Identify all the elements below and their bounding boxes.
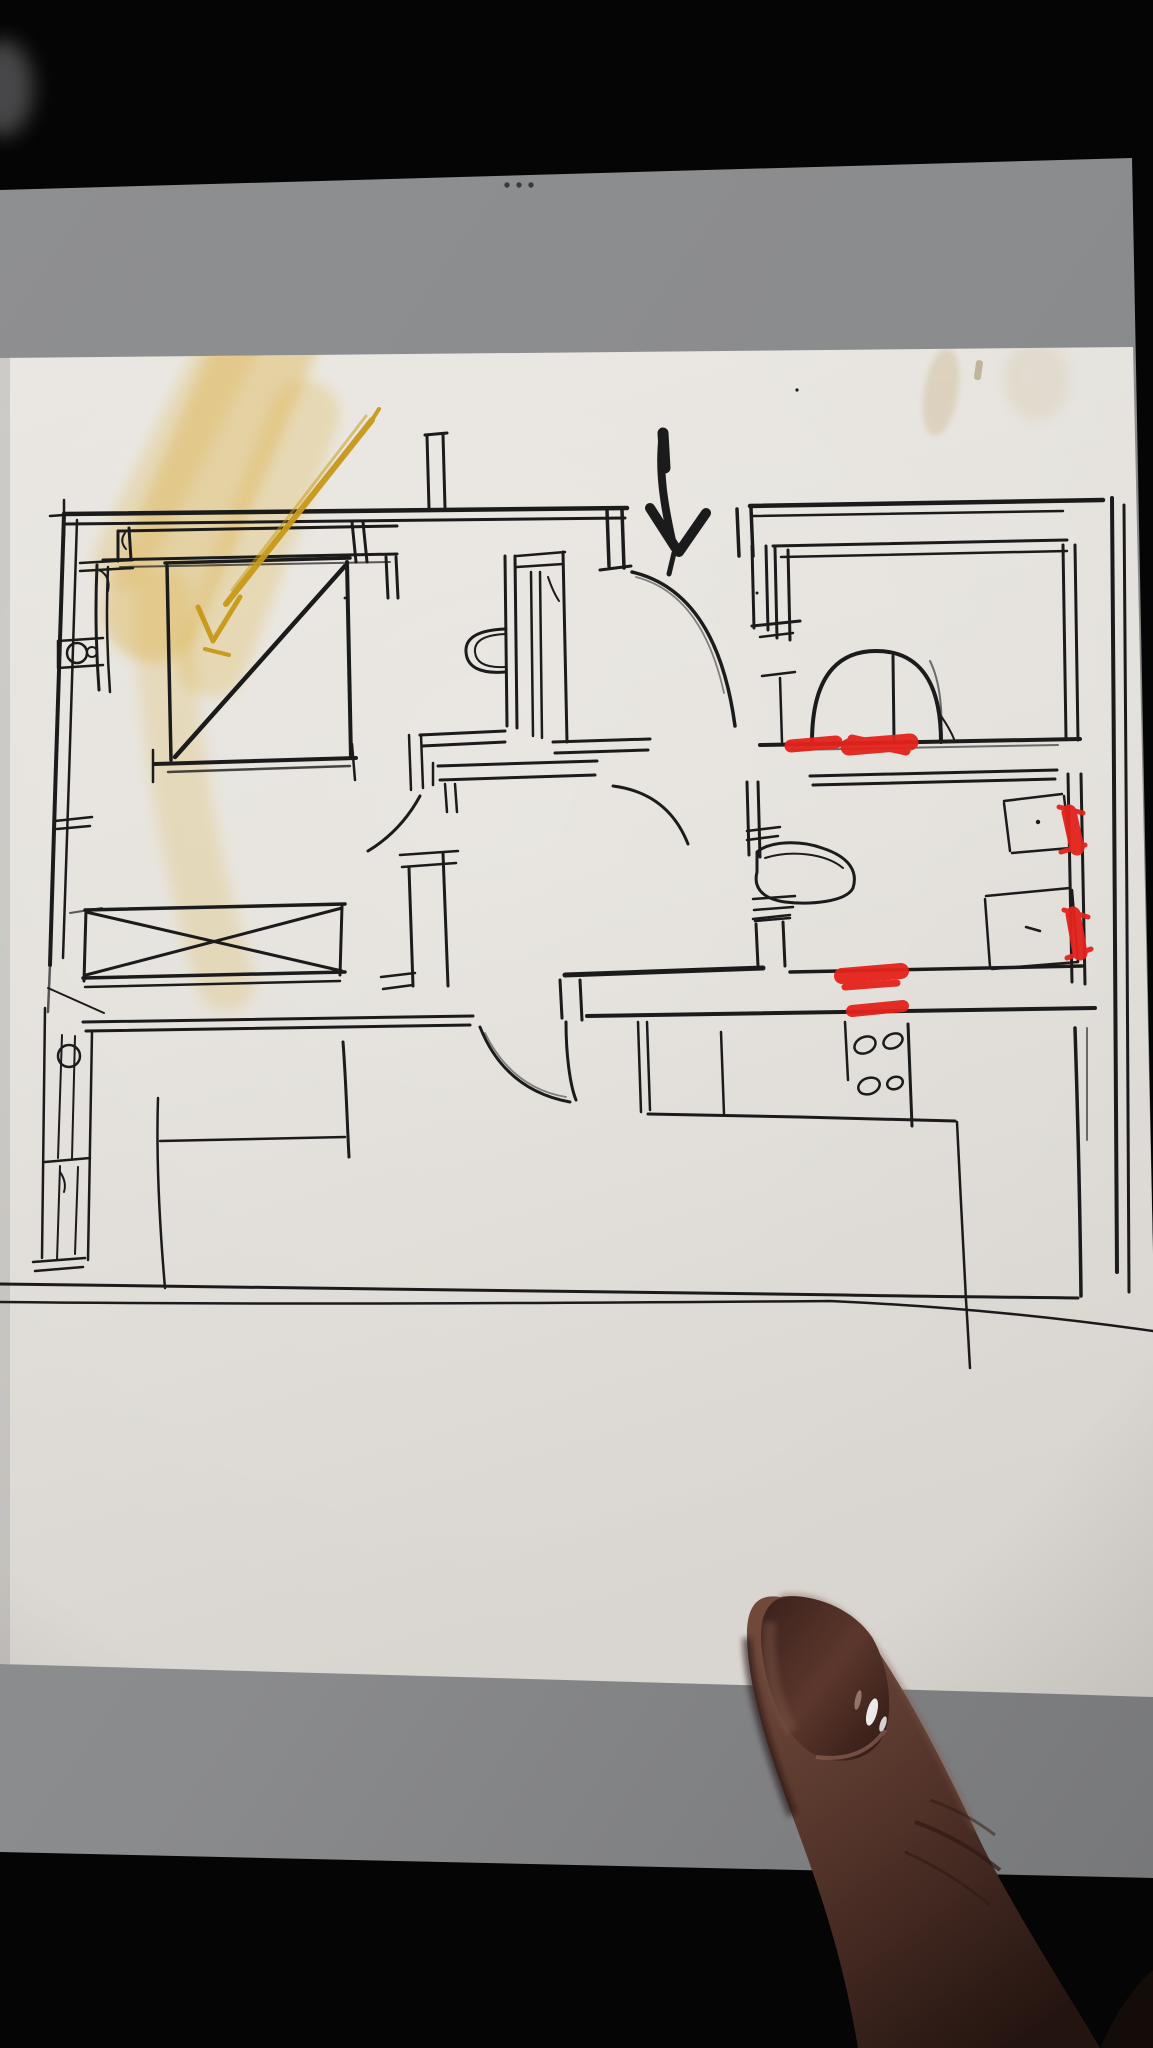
photo-stage: [0, 0, 1153, 2048]
handle-dot[interactable]: [528, 182, 533, 187]
three-dots-handle-icon[interactable]: [504, 182, 533, 187]
handle-dot[interactable]: [516, 182, 521, 187]
handle-dot[interactable]: [504, 182, 509, 187]
paper-vignette: [0, 347, 1153, 1697]
